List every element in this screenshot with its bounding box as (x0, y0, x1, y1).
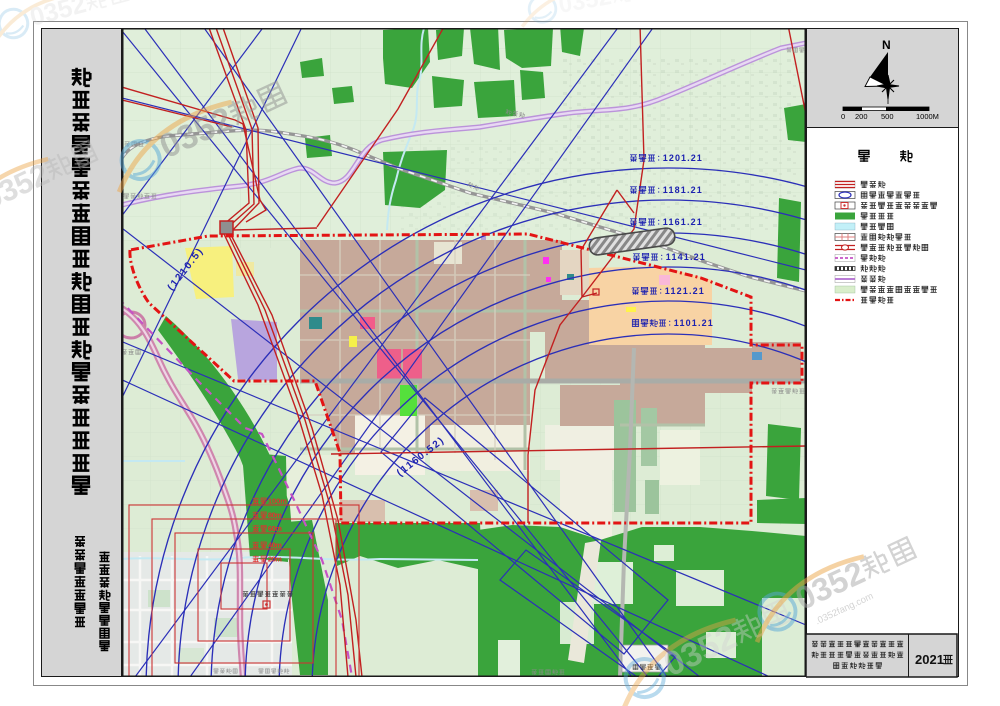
svg-text:1181.21: 1181.21 (663, 185, 702, 195)
svg-text:80m: 80m (268, 511, 282, 520)
svg-text:N: N (882, 38, 891, 52)
svg-text:1000M: 1000M (916, 112, 939, 121)
svg-text:0352: 0352 (557, 0, 614, 19)
svg-text:20m: 20m (268, 555, 282, 564)
svg-text:1161.21: 1161.21 (663, 217, 702, 227)
svg-text:1201.21: 1201.21 (663, 153, 702, 163)
svg-text:500: 500 (881, 112, 894, 121)
svg-text:1121.21: 1121.21 (665, 286, 704, 296)
svg-text:2021: 2021 (915, 652, 944, 667)
svg-text:40m: 40m (268, 541, 282, 550)
svg-text:200: 200 (855, 112, 868, 121)
svg-text:100m: 100m (268, 497, 287, 506)
svg-text:0: 0 (841, 112, 845, 121)
svg-text:1141.21: 1141.21 (666, 252, 705, 262)
svg-text:60m: 60m (268, 524, 282, 533)
svg-text:1101.21: 1101.21 (674, 318, 713, 328)
